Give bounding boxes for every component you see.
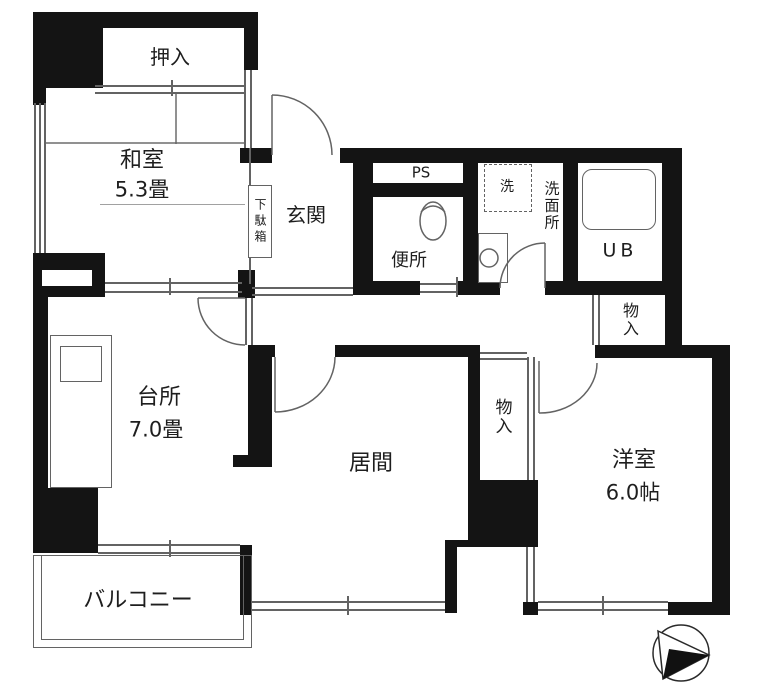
living-door-arc [275,357,335,412]
room-label-yoshitsu: 洋室 [612,450,656,472]
kitchen-door-arc [198,298,245,345]
label-shoe-cabinet: 下駄箱 [254,198,266,246]
room-label-genkan: 玄関 [286,205,326,225]
room-label-living: 居間 [349,453,393,475]
room-label-washroom: 洗面所 [544,181,559,232]
toilet-icon [420,202,446,240]
room-label-washitsu: 和室 [120,150,164,172]
washroom-door-arc [500,243,545,288]
room-label-unit-bath: UB [603,242,638,261]
washbasin-icon [480,249,498,267]
room-label-kitchen: 台所 [137,387,181,409]
room-label-toilet: 便所 [391,252,427,270]
label-storage-hall: 物入 [621,302,637,338]
room-label-balcony: バルコニー [83,590,193,612]
label-storage-living: 物入 [493,398,510,436]
room-size-washitsu: 5.3畳 [115,180,169,201]
room-size-kitchen: 7.0畳 [129,420,183,441]
yoshitsu-door-arc [539,363,597,413]
label-washer: 洗 [500,180,514,194]
entrance-door-arc [272,95,332,155]
label-pipe-space: PS [412,166,431,181]
floor-plan: 押入 和室 5.3畳 玄関 下駄箱 PS 便所 洗 洗面所 UB 物入 物入 台… [0,0,765,700]
room-size-yoshitsu: 6.0帖 [606,483,660,504]
room-label-oshiire: 押入 [150,47,190,67]
